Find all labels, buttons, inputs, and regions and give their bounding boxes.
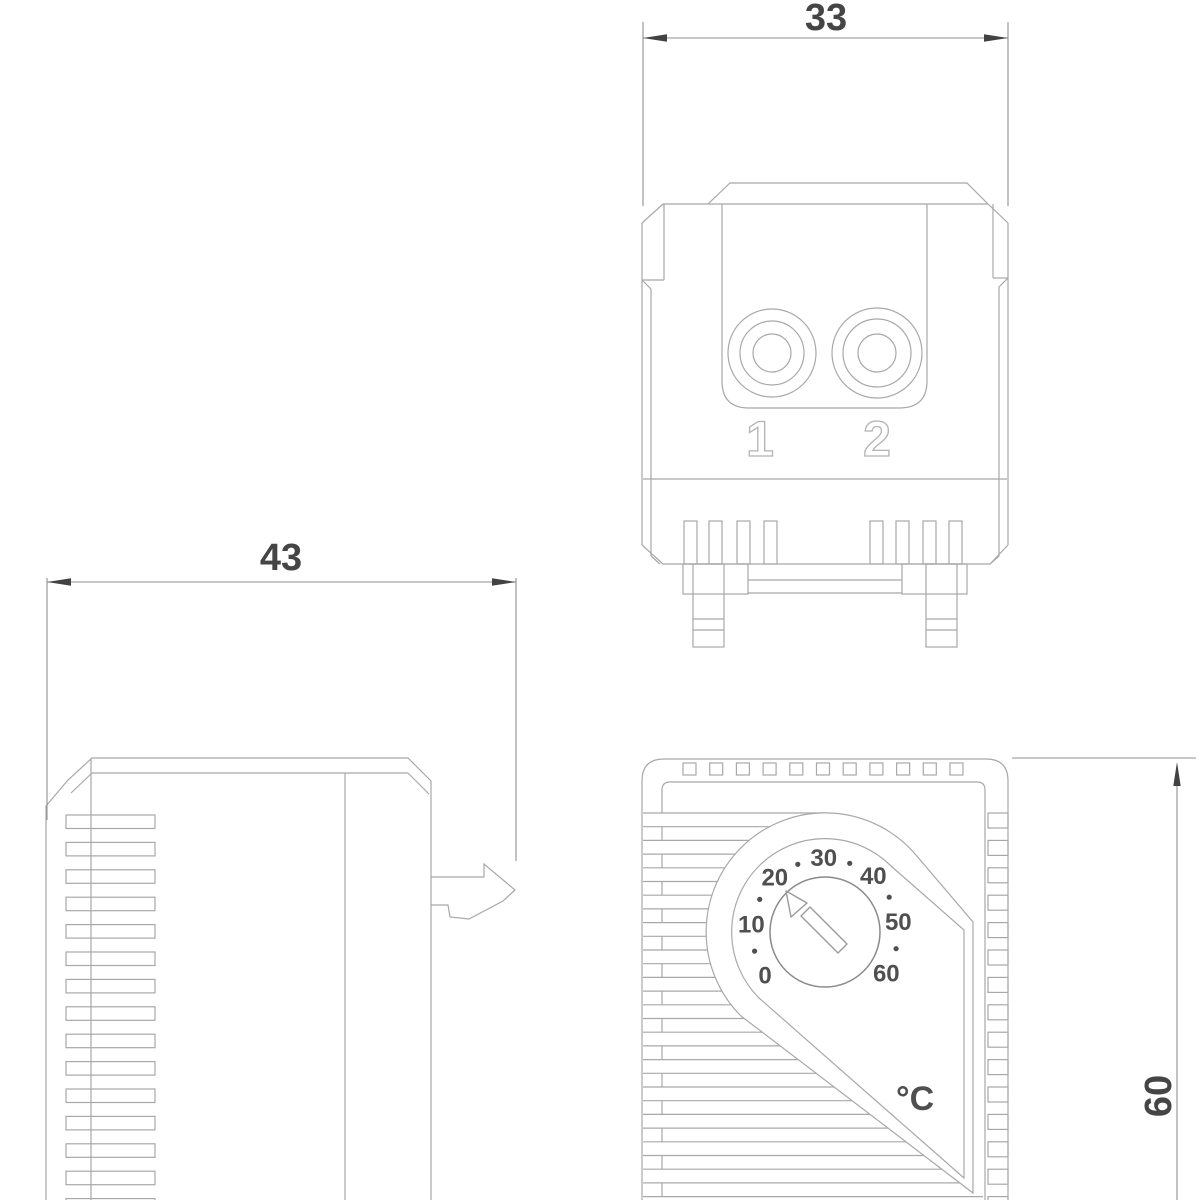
dial-tick-dot bbox=[757, 897, 762, 902]
dial-tick-label: 50 bbox=[885, 909, 912, 936]
dimension-value: 43 bbox=[260, 537, 302, 579]
dial-tick-dot bbox=[795, 862, 800, 867]
dial-tick-label: 10 bbox=[738, 912, 765, 939]
dial-tick-label: 0 bbox=[758, 963, 771, 990]
dial-tick-label: 20 bbox=[761, 865, 788, 892]
dial-tick-dot bbox=[894, 946, 899, 951]
dial-tick-dot bbox=[847, 861, 852, 866]
unit-label: °C bbox=[896, 1080, 934, 1118]
dial-tick-label: 60 bbox=[873, 960, 900, 987]
dial-tick-dot bbox=[752, 949, 757, 954]
terminal-1-label: 1 bbox=[746, 411, 774, 467]
dial-tick-label: 30 bbox=[810, 845, 837, 872]
terminal-2-label: 2 bbox=[863, 411, 891, 467]
dimension-value: 33 bbox=[805, 0, 847, 39]
background bbox=[0, 0, 1200, 1200]
dial-tick-dot bbox=[887, 895, 892, 900]
dial-tick-label: 40 bbox=[860, 863, 887, 890]
technical-drawing: 1 2 bbox=[0, 0, 1200, 1200]
dimension-value: 60 bbox=[1138, 1075, 1180, 1117]
drawing-canvas: 1 2 bbox=[0, 0, 1200, 1200]
